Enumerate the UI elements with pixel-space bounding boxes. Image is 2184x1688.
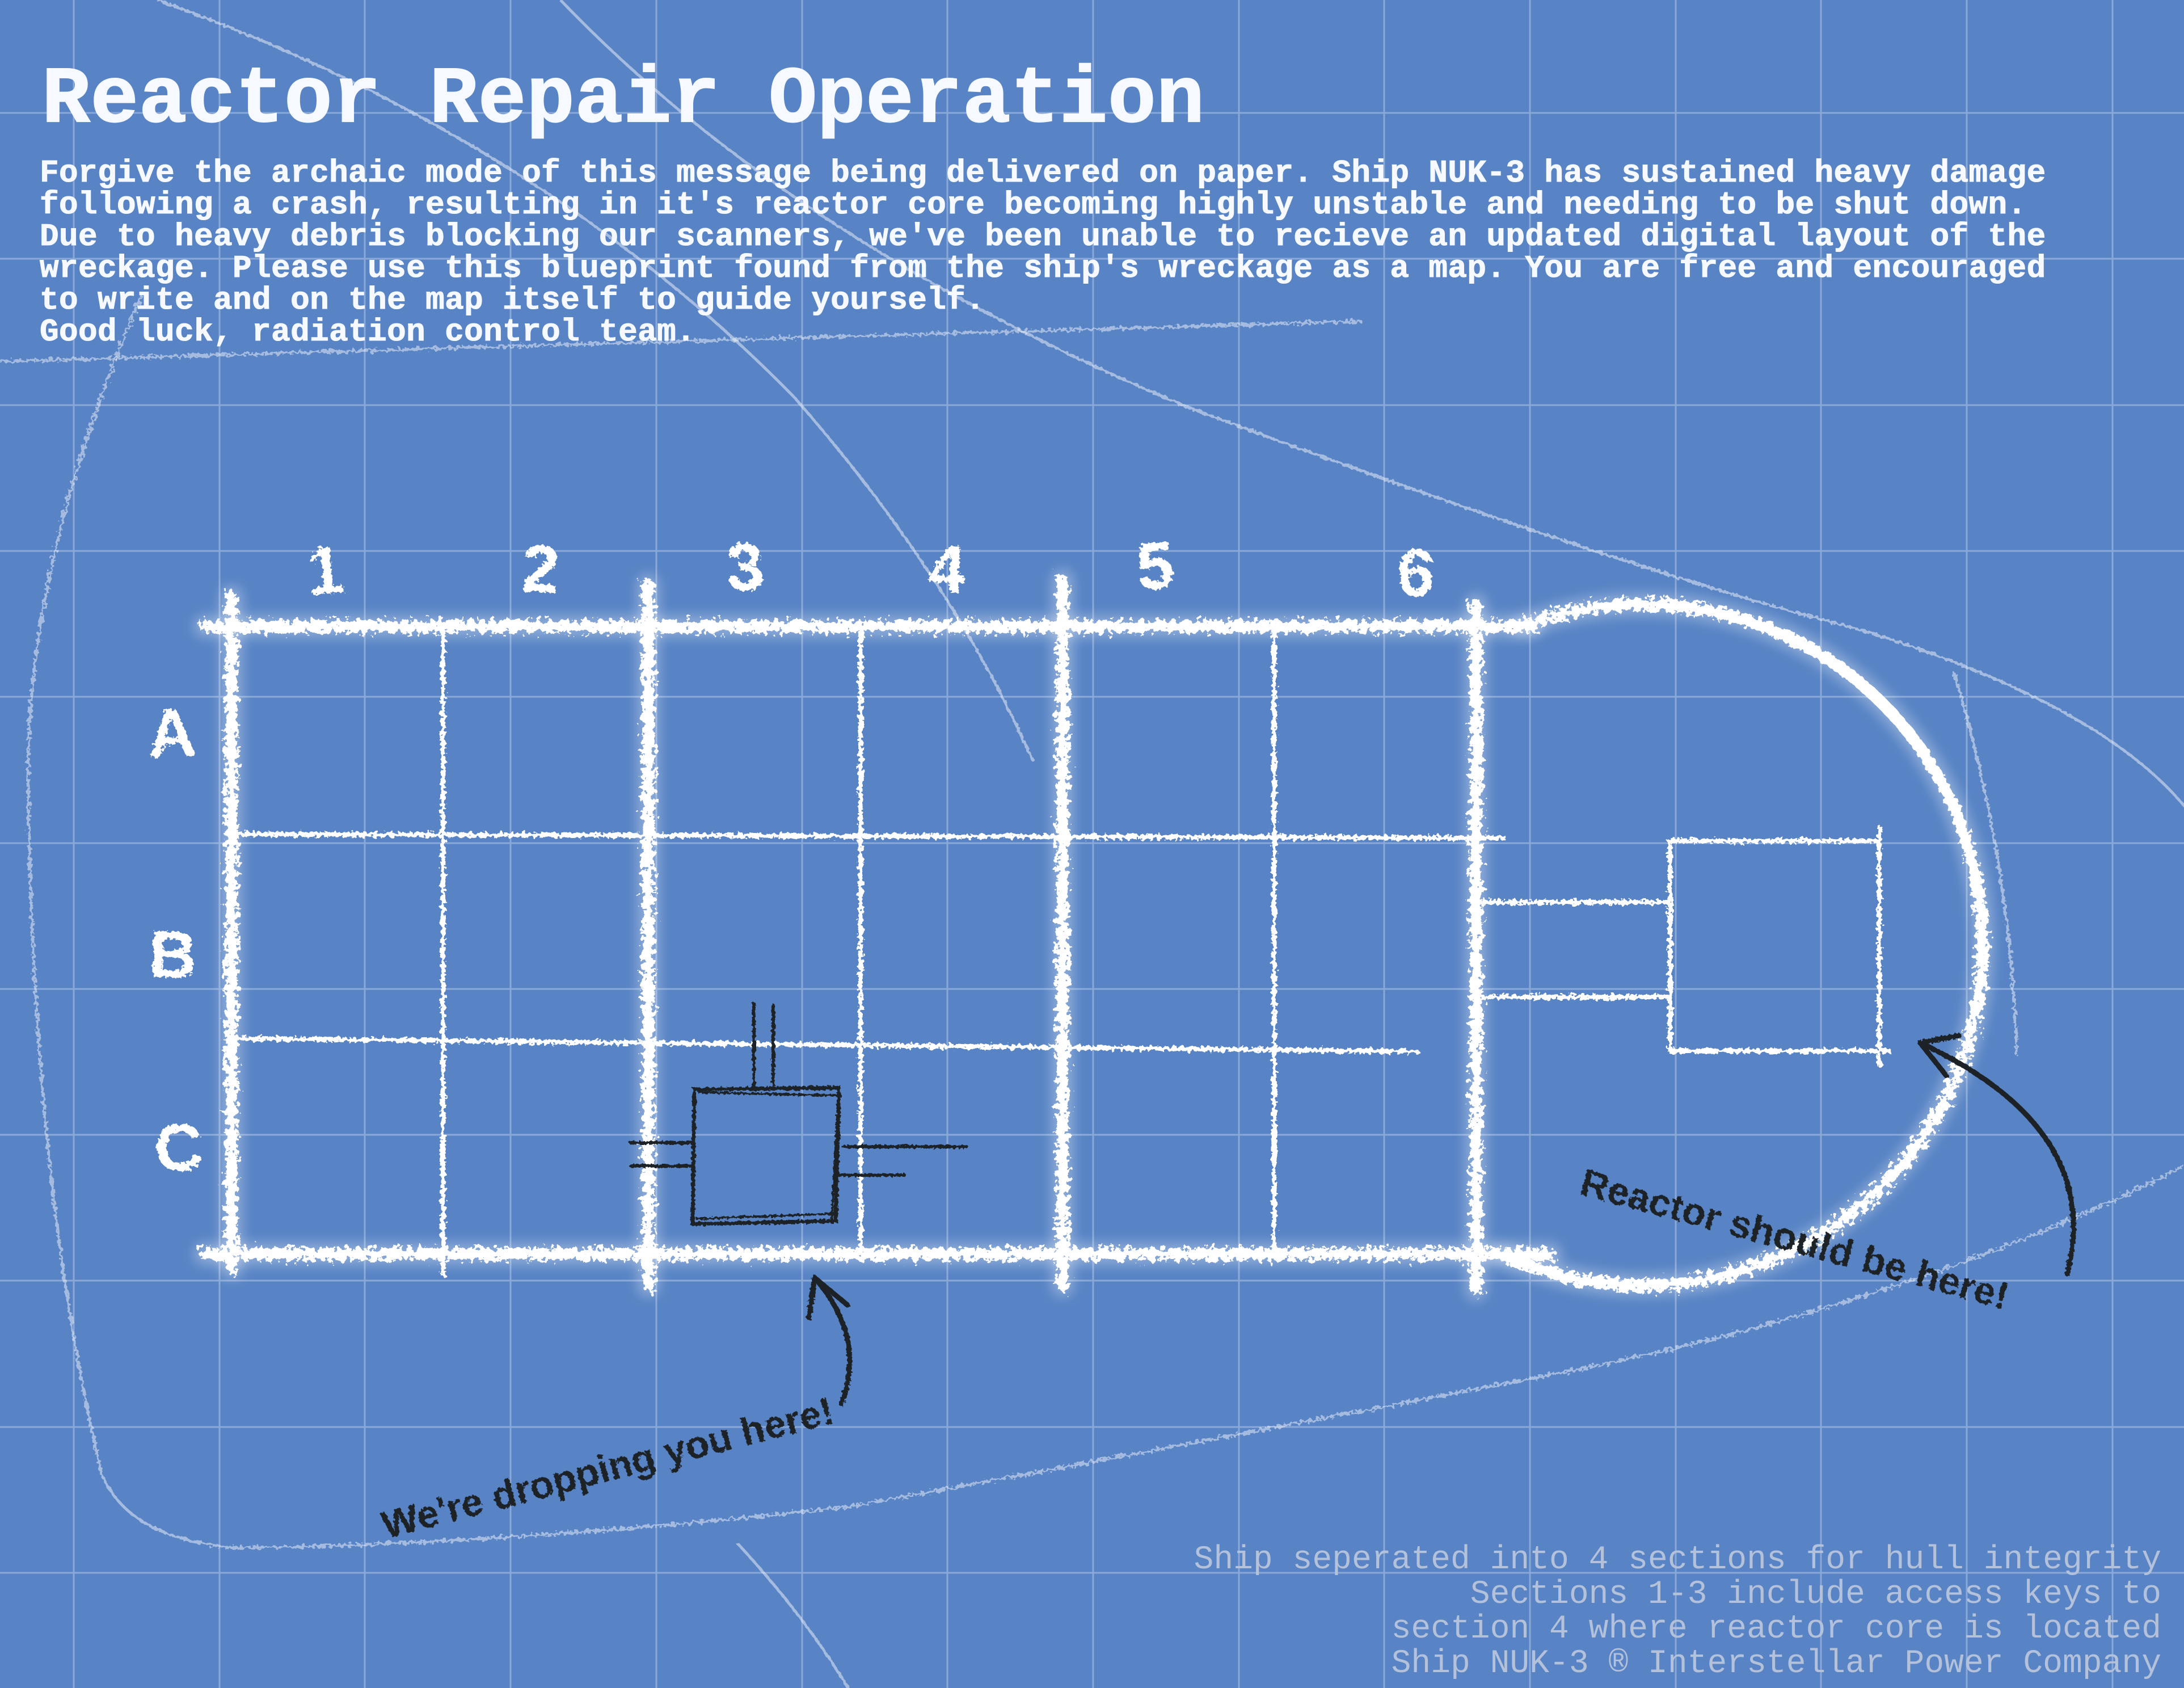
svg-text:B: B	[147, 917, 199, 994]
svg-text:5: 5	[1136, 528, 1175, 604]
svg-text:1: 1	[304, 532, 347, 609]
svg-text:6: 6	[1395, 534, 1436, 611]
svg-text:4: 4	[927, 531, 967, 607]
svg-text:3: 3	[725, 529, 766, 605]
svg-text:2: 2	[520, 531, 561, 607]
svg-text:A: A	[146, 695, 198, 772]
svg-text:C: C	[153, 1110, 204, 1186]
